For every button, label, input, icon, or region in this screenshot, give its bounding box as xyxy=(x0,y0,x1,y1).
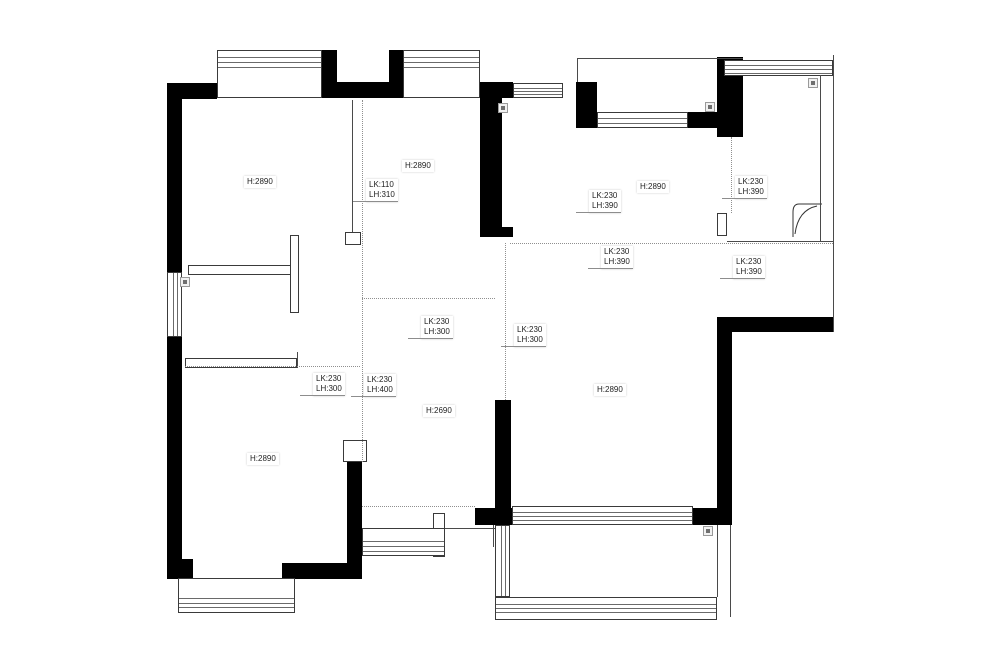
wall-segment xyxy=(688,112,718,128)
fixture-marker-icon xyxy=(808,78,818,88)
wall-segment xyxy=(495,400,511,508)
beam-dimension-label: LK:230LH:390 xyxy=(589,190,621,213)
window xyxy=(403,50,480,98)
window xyxy=(513,83,563,98)
wall-line xyxy=(727,241,833,242)
beam-dimension-label: LK:230LH:300 xyxy=(313,373,345,396)
label-text: LH:310 xyxy=(369,190,395,200)
label-text: LH:390 xyxy=(736,267,762,277)
fixture-marker-icon xyxy=(705,102,715,112)
label-text: LK:230 xyxy=(592,191,618,201)
beam-dimension-label: LK:230LH:390 xyxy=(733,256,765,279)
label-text: LH:390 xyxy=(604,257,630,267)
label-text: LK:230 xyxy=(316,374,342,384)
wall-line xyxy=(717,525,718,597)
window xyxy=(512,506,693,525)
window xyxy=(597,112,688,128)
wall-segment xyxy=(693,508,732,525)
room-height-label: H:2690 xyxy=(423,405,455,417)
label-text: LK:230 xyxy=(424,317,450,327)
opening-dashed-line xyxy=(510,243,833,244)
opening-dashed-line xyxy=(505,243,506,400)
beam-dimension-label: LK:230LH:390 xyxy=(601,246,633,269)
opening-dashed-line xyxy=(362,100,363,462)
window xyxy=(178,578,295,613)
fixture-marker-icon xyxy=(703,526,713,536)
wall-segment xyxy=(167,559,193,579)
opening-dashed-line xyxy=(362,506,475,507)
room-height-label: H:2890 xyxy=(594,384,626,396)
label-text: H:2890 xyxy=(640,182,666,192)
room-height-label: H:2890 xyxy=(402,160,434,172)
wall-line xyxy=(352,100,353,232)
wall-segment xyxy=(475,508,512,525)
wall-segment xyxy=(322,50,337,98)
wall-segment xyxy=(576,82,597,128)
wall-segment xyxy=(480,227,513,237)
label-text: LK:230 xyxy=(738,177,764,187)
window xyxy=(724,60,833,76)
room-height-label: H:2890 xyxy=(637,181,669,193)
label-text: LH:400 xyxy=(367,385,393,395)
wall-segment xyxy=(167,83,182,275)
interior-partition xyxy=(290,235,299,313)
wall-segment xyxy=(717,317,732,523)
label-text: H:2890 xyxy=(247,177,273,187)
wall-line xyxy=(493,525,494,547)
label-text: H:2890 xyxy=(250,454,276,464)
wall-line xyxy=(577,58,578,82)
label-text: LK:230 xyxy=(367,375,393,385)
fixture-marker-icon xyxy=(180,277,190,287)
beam-dimension-label: LK:230LH:300 xyxy=(514,324,546,347)
label-text: LH:300 xyxy=(316,384,342,394)
label-text: LH:300 xyxy=(424,327,450,337)
opening-dashed-line xyxy=(185,366,360,367)
label-text: H:2690 xyxy=(426,406,452,416)
interior-partition xyxy=(343,440,367,462)
window xyxy=(495,525,510,597)
label-text: LH:390 xyxy=(592,201,618,211)
beam-dimension-label: LK:230LH:390 xyxy=(735,176,767,199)
wall-line xyxy=(730,525,731,617)
label-text: LK:230 xyxy=(517,325,543,335)
wall-segment xyxy=(337,82,389,98)
label-text: H:2890 xyxy=(405,161,431,171)
label-text: LK:110 xyxy=(369,180,395,190)
label-text: LK:230 xyxy=(604,247,630,257)
interior-partition xyxy=(188,265,293,275)
wall-segment xyxy=(347,462,362,579)
label-text: LH:300 xyxy=(517,335,543,345)
window xyxy=(362,528,445,556)
floorplan-canvas: H:2890H:2890LK:110LH:310LK:230LH:390H:28… xyxy=(0,0,1000,667)
beam-dimension-label: LK:110LH:310 xyxy=(366,179,398,202)
label-text: LK:230 xyxy=(736,257,762,267)
wall-segment xyxy=(167,337,182,563)
wall-line xyxy=(445,528,495,529)
fixture-marker-icon xyxy=(498,103,508,113)
opening-dashed-line xyxy=(731,137,732,213)
window xyxy=(495,597,717,620)
label-text: H:2890 xyxy=(597,385,623,395)
wall-line xyxy=(833,55,834,332)
beam-dimension-label: LK:230LH:300 xyxy=(421,316,453,339)
wall-segment xyxy=(282,563,362,579)
beam-dimension-label: LK:230LH:400 xyxy=(364,374,396,397)
wall-segment xyxy=(389,50,403,98)
label-text: LH:390 xyxy=(738,187,764,197)
interior-partition xyxy=(717,213,727,236)
wall-segment xyxy=(717,317,833,332)
window xyxy=(217,50,322,98)
wall-line xyxy=(577,58,743,59)
wall-line xyxy=(820,75,821,241)
room-height-label: H:2890 xyxy=(244,176,276,188)
room-height-label: H:2890 xyxy=(247,453,279,465)
interior-partition xyxy=(345,232,361,245)
opening-dashed-line xyxy=(362,298,495,299)
